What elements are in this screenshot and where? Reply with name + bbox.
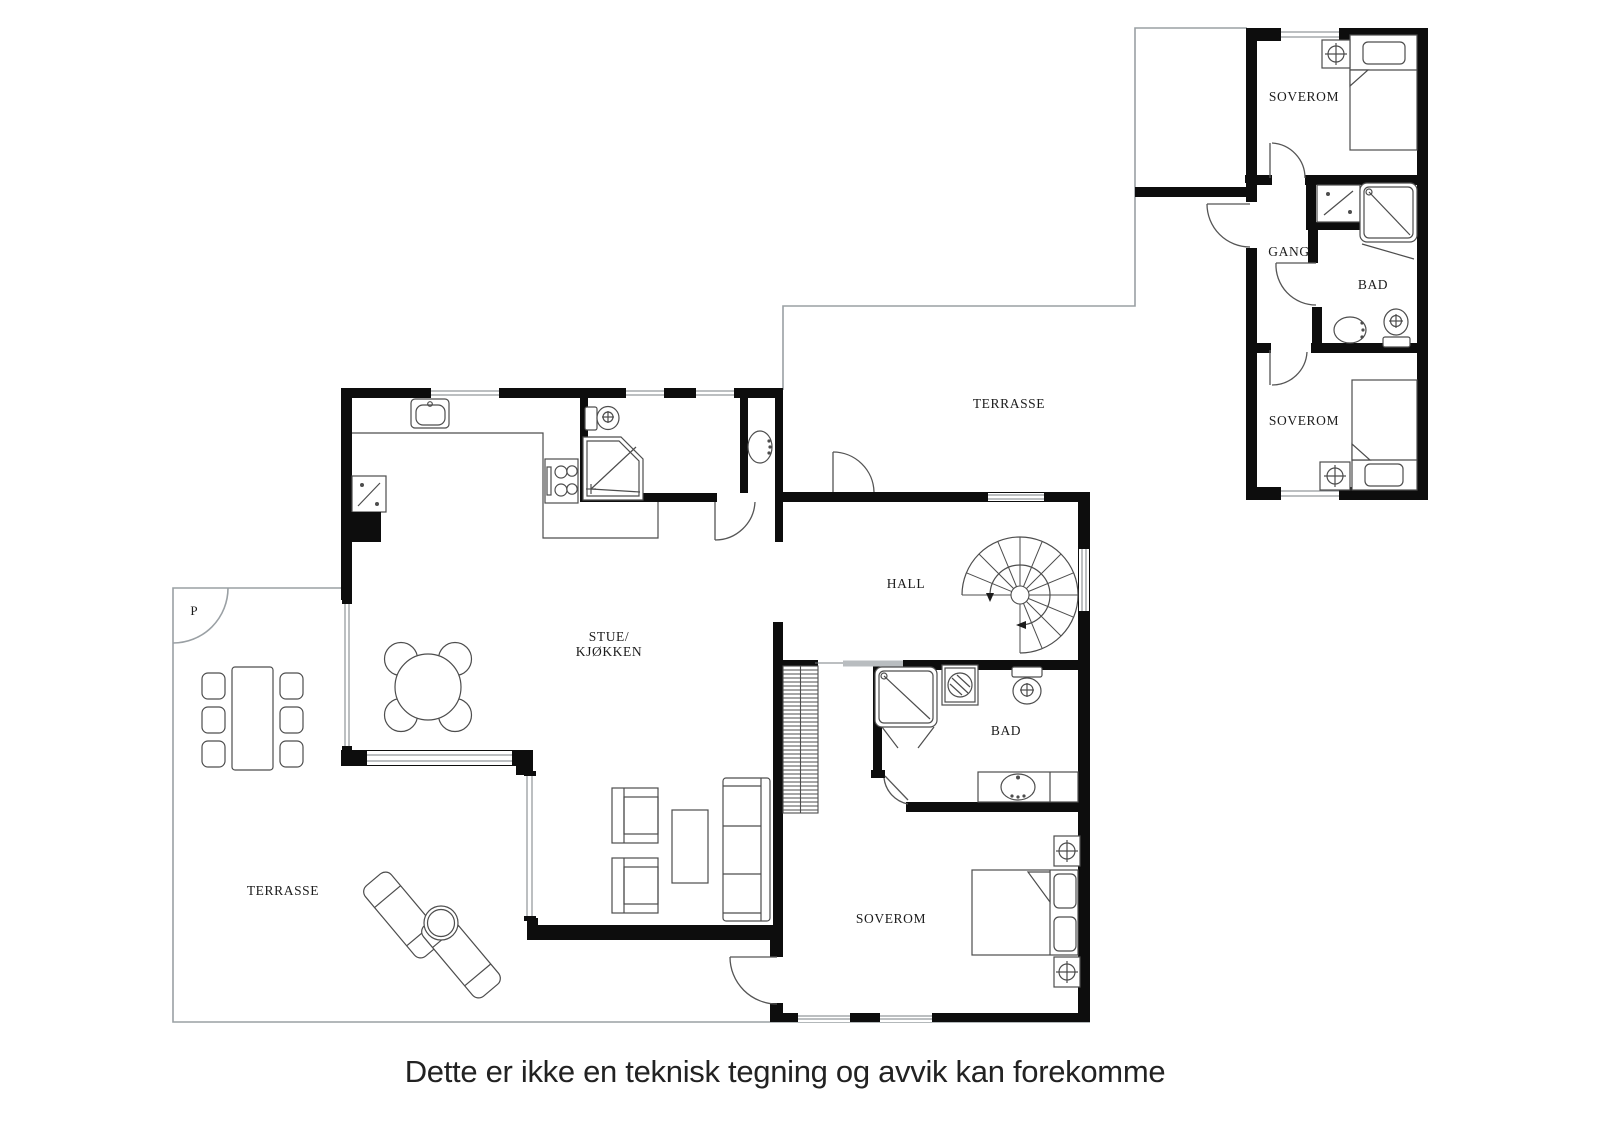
kitchen-sink-icon: [411, 399, 449, 428]
kitchen-counter-lower: [543, 502, 658, 538]
washing-machine-icon: [942, 665, 978, 705]
window-icon: [693, 388, 737, 398]
window-icon: [342, 600, 352, 750]
floorplan-page: SOVEROM GANG BAD SOVEROM TERRASSE HALL S…: [0, 0, 1600, 1131]
single-bed-icon: [1350, 35, 1417, 150]
room-label-terrasse-main: TERRASSE: [247, 883, 319, 898]
door-livingroom-terrace-icon: [730, 957, 777, 1004]
corner-shower-icon: [583, 437, 643, 500]
single-bed-icon: [1352, 380, 1417, 490]
washing-machine-cabinet-icon: [1317, 185, 1360, 222]
room-label-stue-line1: STUE/: [589, 629, 630, 644]
door-soverom-wing-top-icon: [1270, 143, 1305, 178]
window-icon: [363, 751, 516, 765]
livingroom-furniture: [385, 643, 771, 922]
sofa-icon: [723, 778, 770, 921]
room-label-soverom-main: SOVEROM: [856, 911, 926, 926]
vanity-sink-icon: [978, 772, 1078, 802]
room-label-terrasse-top: TERRASSE: [973, 396, 1045, 411]
room-label-bad-wing: BAD: [1358, 277, 1388, 292]
dining-table-icon: [202, 667, 303, 770]
window-icon: [524, 771, 536, 921]
side-table-icon: [424, 906, 458, 940]
room-label-bad-main: BAD: [991, 723, 1021, 738]
parking-label: P: [190, 603, 197, 618]
shower-icon: [875, 667, 937, 748]
window-icon: [1079, 545, 1089, 615]
floorplan-drawing: SOVEROM GANG BAD SOVEROM TERRASSE HALL S…: [0, 0, 1600, 1131]
round-table-icon: [385, 643, 472, 732]
coffee-table-icon: [672, 810, 708, 883]
straight-stairs-icon: [783, 666, 818, 813]
door-hall-entry-icon: [833, 452, 874, 492]
room-label-soverom-wing-top: SOVEROM: [1269, 89, 1339, 104]
window-icon: [795, 1013, 853, 1022]
walls: [341, 28, 1428, 1022]
toilet-icon: [1383, 309, 1410, 347]
door-bathroom-main-icon: [715, 502, 755, 540]
terrace-top-outline: [783, 28, 1247, 390]
nightstand-icon: [1054, 957, 1080, 987]
stair-direction-arrow: [986, 593, 994, 602]
toilet-icon: [1012, 667, 1042, 704]
window-icon: [428, 388, 502, 398]
nightstand-icon: [1054, 836, 1080, 866]
bathroom-main-fixtures: [875, 665, 1078, 802]
window-icon: [877, 1013, 935, 1022]
nightstand-icon: [1322, 40, 1350, 68]
room-label-stue-line2: KJØKKEN: [576, 644, 642, 659]
vanity-sink-icon: [1334, 317, 1366, 343]
sliding-door-bad-icon: [815, 661, 903, 667]
disclaimer-text: Dette er ikke en teknisk tegning og avvi…: [405, 1054, 1166, 1089]
stove-icon: [545, 459, 578, 503]
niche-sink-icon: [748, 431, 772, 463]
door-gang-exterior-icon: [1207, 204, 1250, 247]
room-label-gang: GANG: [1268, 244, 1309, 259]
shower-icon: [1360, 183, 1417, 259]
spiral-stairs-icon: [962, 537, 1078, 653]
toilet-icon: [585, 407, 619, 431]
window-icon: [1277, 28, 1343, 41]
nightstand-icon: [1320, 462, 1350, 490]
bedroom-main-furniture: [972, 836, 1080, 987]
double-bed-icon: [972, 870, 1078, 955]
window-icon: [623, 388, 667, 398]
dishwasher-icon: [352, 476, 386, 512]
door-soverom-wing-bottom-icon: [1270, 350, 1307, 385]
door-soverom-main-icon: [884, 776, 908, 804]
door-gang-bad-icon: [1276, 263, 1316, 305]
room-label-soverom-wing-bottom: SOVEROM: [1269, 413, 1339, 428]
window-icon: [985, 493, 1047, 501]
armchair-icon: [612, 858, 658, 913]
terrace-gate-arc: [173, 588, 228, 643]
chimney-block: [341, 512, 381, 542]
windows: [342, 28, 1343, 1022]
armchair-icon: [612, 788, 658, 843]
room-label-hall: HALL: [887, 576, 925, 591]
